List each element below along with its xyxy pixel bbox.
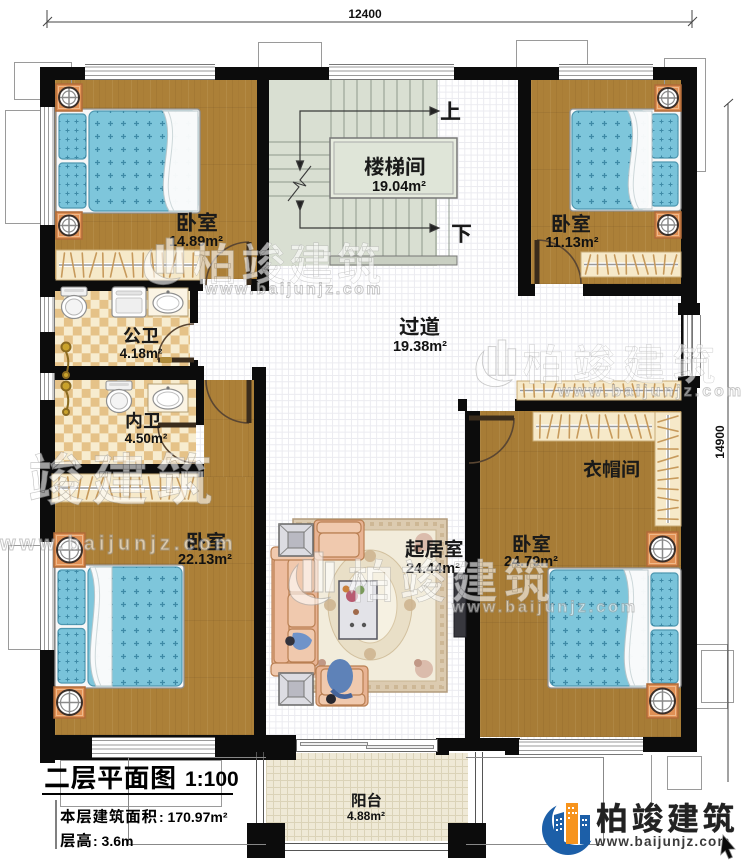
svg-text:14900: 14900 (713, 425, 727, 459)
svg-text:www.baijunjz.com: www.baijunjz.com (451, 599, 638, 616)
svg-text:1:100: 1:100 (185, 768, 239, 791)
svg-text:www.baijunjz.com: www.baijunjz.com (204, 281, 383, 298)
svg-text:4.18m²: 4.18m² (120, 346, 163, 361)
svg-text:www.baijunjz.com: www.baijunjz.com (594, 834, 731, 849)
svg-text:: 3.6m: : 3.6m (93, 833, 133, 849)
svg-text:: 170.97m²: : 170.97m² (159, 809, 228, 825)
svg-text:www.baijunjz.com: www.baijunjz.com (0, 533, 237, 555)
svg-text:19.04m²: 19.04m² (372, 179, 426, 195)
svg-text:12400: 12400 (348, 7, 382, 21)
svg-text:11.13m²: 11.13m² (545, 235, 598, 251)
svg-text:4.88m²: 4.88m² (347, 809, 385, 823)
svg-text:4.50m²: 4.50m² (125, 431, 168, 446)
svg-text:www.baijunjz.com: www.baijunjz.com (557, 383, 744, 400)
svg-text:19.38m²: 19.38m² (393, 339, 447, 355)
